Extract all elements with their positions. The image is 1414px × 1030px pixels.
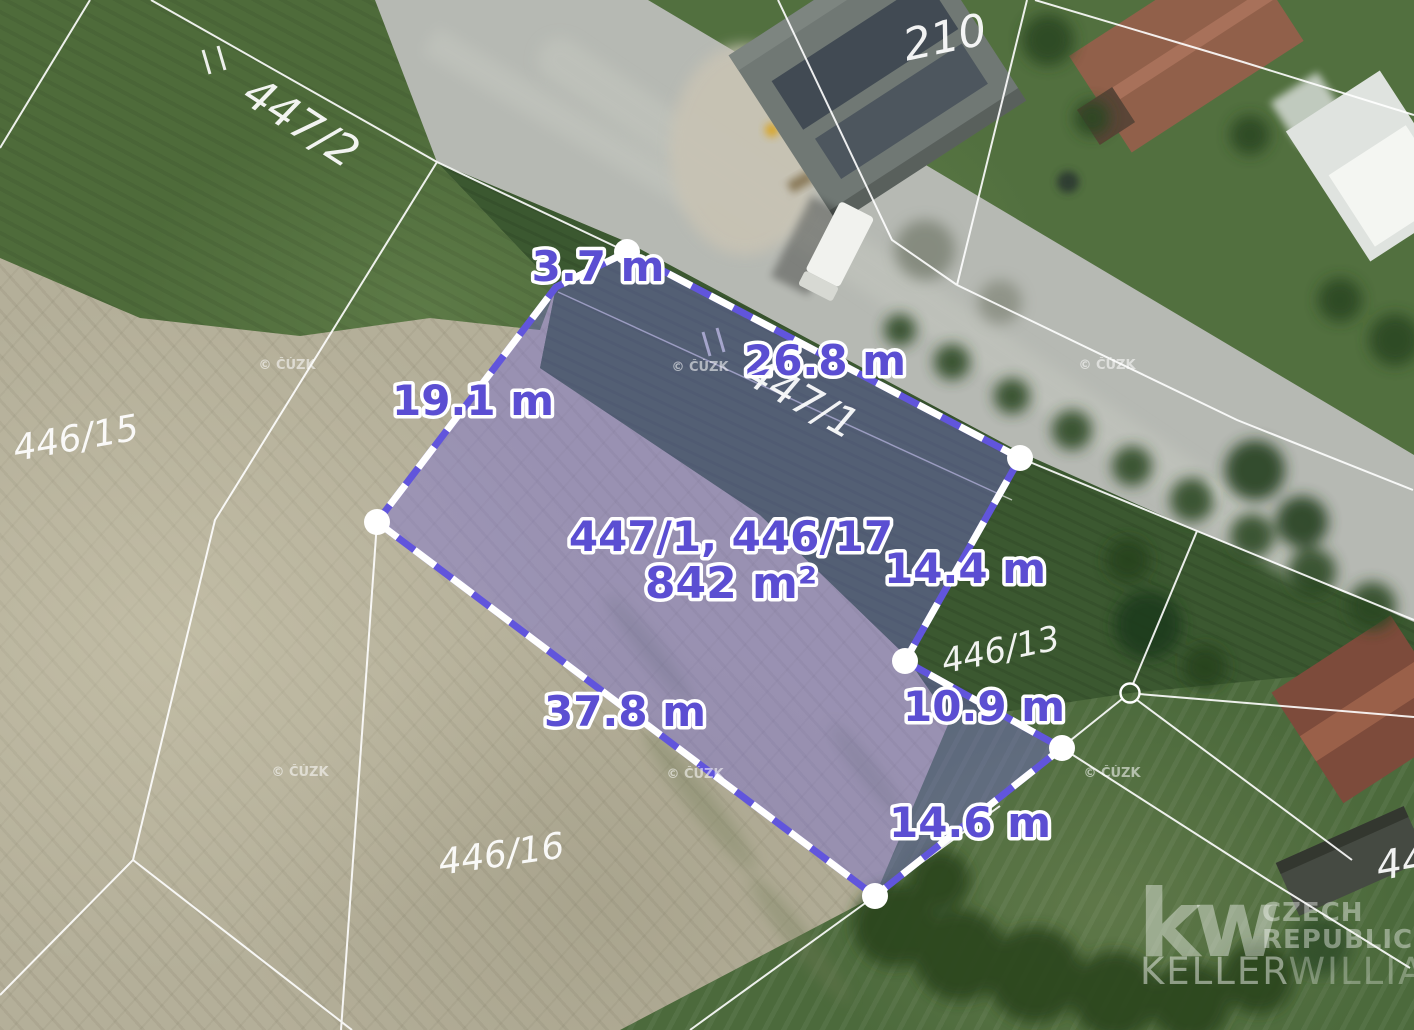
aerial-cadastral-map: 3.7 m 26.8 m 19.1 m 14.4 m 10.9 m 37.8 m… bbox=[0, 0, 1414, 1030]
cuzk-watermark: © ČÚZK bbox=[258, 357, 316, 373]
cuzk-watermark: © ČÚZK bbox=[1083, 765, 1141, 781]
parcel-number-446-15: 446/15 bbox=[10, 407, 142, 469]
kw-brand-light: WILLIAMS. bbox=[1288, 950, 1414, 993]
cuzk-watermark: © ČÚZK bbox=[671, 359, 729, 375]
edge-length-label: 3.7 m bbox=[532, 242, 665, 291]
edge-length-label: 14.4 m bbox=[884, 544, 1046, 593]
edge-length-label: 19.1 m bbox=[392, 376, 554, 425]
edge-length-label: 14.6 m bbox=[889, 798, 1051, 847]
cuzk-watermark: © ČÚZK bbox=[271, 764, 329, 780]
cuzk-watermark: © ČÚZK bbox=[666, 766, 724, 782]
kw-brand-name: KELLERWILLIAMS. bbox=[1140, 950, 1414, 993]
cuzk-watermark: © ČÚZK bbox=[1078, 357, 1136, 373]
boundary-point-circle bbox=[1121, 684, 1140, 703]
parcel-number-clipped: 44 bbox=[1373, 836, 1414, 890]
parcel-ids-label: 447/1, 446/17 bbox=[569, 512, 893, 561]
map-vector-overlay: 3.7 m 26.8 m 19.1 m 14.4 m 10.9 m 37.8 m… bbox=[0, 0, 1414, 1030]
edge-length-label: 37.8 m bbox=[544, 687, 706, 736]
kw-brand-bold: KELLER bbox=[1140, 950, 1288, 993]
parcel-number-446-16: 446/16 bbox=[436, 825, 567, 883]
parcel-area-label: 842 m² bbox=[645, 558, 817, 609]
edge-length-label: 10.9 m bbox=[903, 682, 1065, 731]
parcel-number-447-2: 447/2 bbox=[234, 67, 368, 179]
keller-williams-logo: kw CZECH REPUBLIC KELLERWILLIAMS. bbox=[1138, 870, 1414, 993]
trampoline bbox=[1057, 171, 1079, 193]
kw-country-1: CZECH bbox=[1262, 898, 1364, 928]
house-bottomright bbox=[1272, 615, 1414, 803]
parcel-number-446-13: 446/13 bbox=[938, 618, 1063, 682]
